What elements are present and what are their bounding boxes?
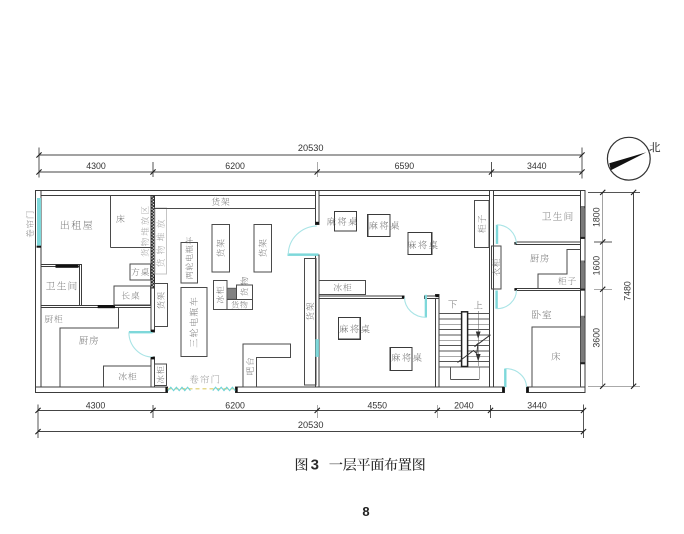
svg-text:4550: 4550 [368,401,388,411]
svg-text:4300: 4300 [86,161,106,171]
svg-text:1600: 1600 [592,256,602,276]
svg-text:6590: 6590 [395,161,415,171]
svg-text:6200: 6200 [225,401,245,411]
svg-text:8: 8 [362,504,369,519]
svg-text:1800: 1800 [592,207,602,227]
svg-text:3440: 3440 [527,161,547,171]
svg-text:20530: 20530 [298,143,324,153]
svg-text:3: 3 [311,457,319,474]
svg-text:4300: 4300 [86,401,106,411]
svg-text:3600: 3600 [592,328,602,348]
svg-text:3440: 3440 [527,401,547,411]
svg-text:20530: 20530 [298,420,324,430]
svg-text:2040: 2040 [454,401,474,411]
svg-text:6200: 6200 [225,161,245,171]
svg-text:7480: 7480 [622,281,632,301]
